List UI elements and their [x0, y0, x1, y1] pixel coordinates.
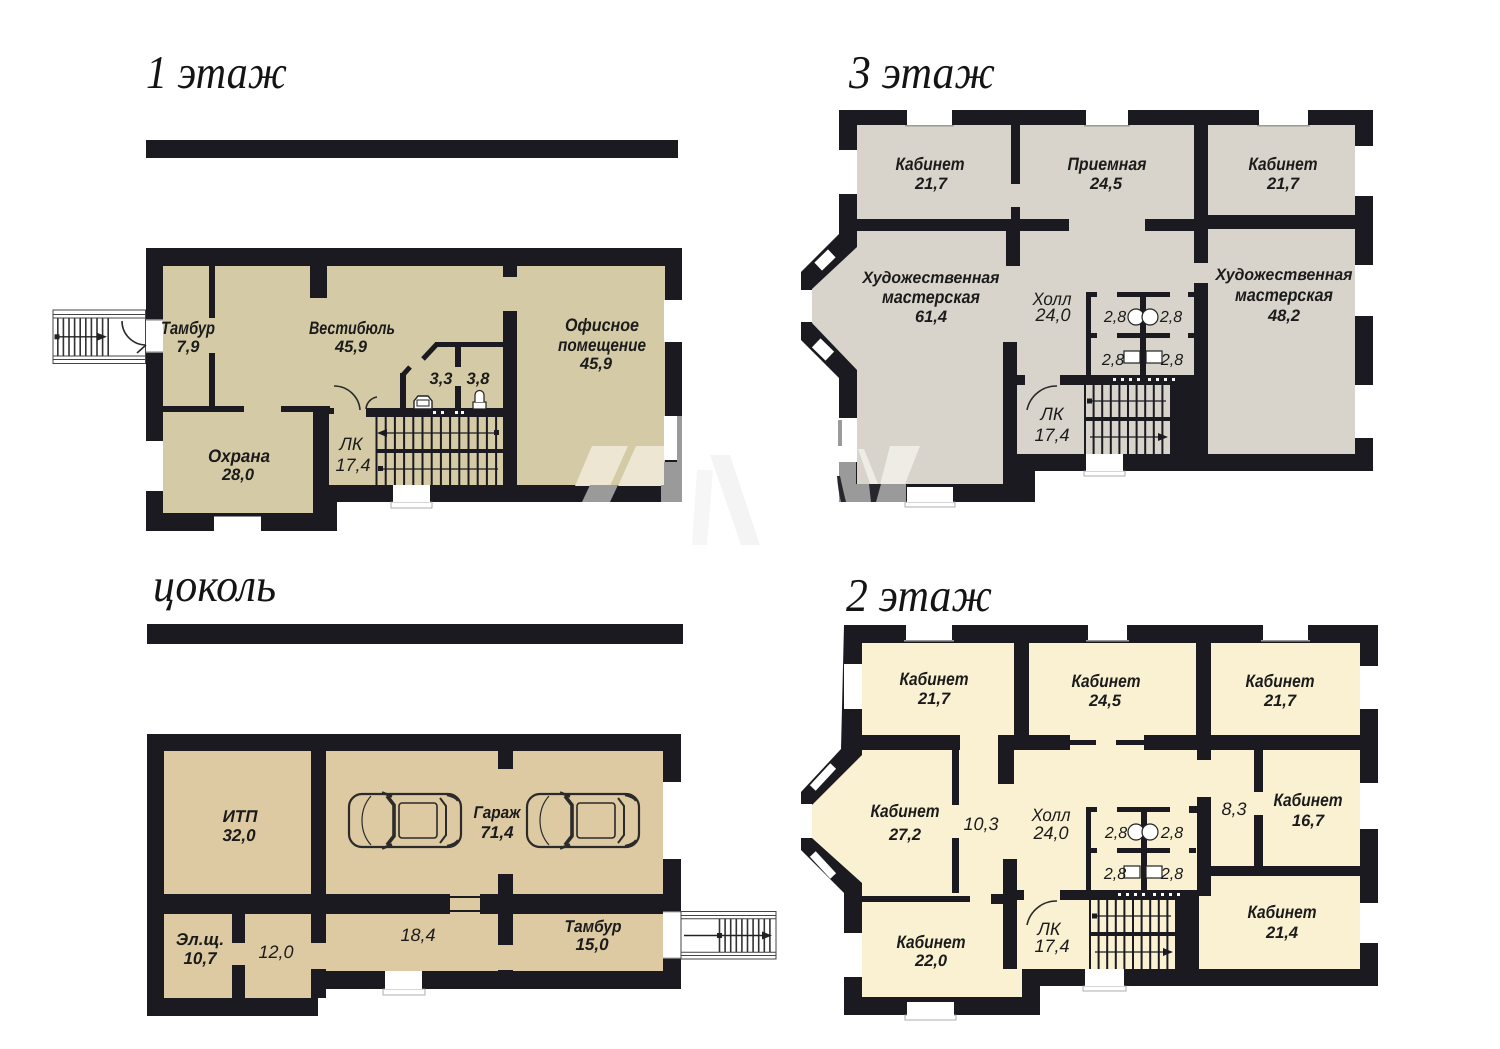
svg-text:2,8: 2,8 — [1160, 825, 1183, 842]
svg-text:24,0: 24,0 — [1032, 823, 1068, 843]
svg-text:Эл.щ.: Эл.щ. — [176, 930, 224, 949]
svg-text:61,4: 61,4 — [915, 308, 947, 326]
svg-text:32,0: 32,0 — [222, 826, 256, 845]
svg-text:2,8: 2,8 — [1104, 825, 1127, 842]
svg-text:Холл: Холл — [1031, 805, 1071, 825]
svg-text:ИТП: ИТП — [223, 807, 259, 826]
svg-text:24,0: 24,0 — [1034, 305, 1070, 325]
svg-text:3,8: 3,8 — [467, 370, 491, 388]
svg-text:2,8: 2,8 — [1103, 309, 1126, 326]
svg-text:Кабинет: Кабинет — [900, 669, 969, 689]
svg-text:Художественная: Художественная — [862, 269, 1000, 287]
svg-text:10,7: 10,7 — [183, 949, 218, 968]
svg-text:Приемная: Приемная — [1068, 154, 1147, 174]
svg-text:Гараж: Гараж — [474, 803, 522, 822]
svg-text:24,5: 24,5 — [1089, 175, 1123, 193]
svg-text:22,0: 22,0 — [914, 952, 948, 970]
svg-text:Кабинет: Кабинет — [897, 932, 966, 952]
svg-text:ЛК: ЛК — [339, 434, 364, 454]
svg-text:ЛК: ЛК — [1040, 404, 1065, 424]
svg-text:45,9: 45,9 — [579, 355, 613, 373]
svg-text:3 этаж: 3 этаж — [848, 47, 995, 99]
svg-text:Тамбур: Тамбур — [161, 318, 215, 338]
svg-text:Кабинет: Кабинет — [1248, 902, 1317, 922]
svg-text:цоколь: цоколь — [153, 560, 276, 612]
svg-text:16,7: 16,7 — [1292, 812, 1325, 830]
svg-text:28,0: 28,0 — [221, 466, 255, 484]
svg-text:21,7: 21,7 — [914, 175, 948, 193]
svg-text:Кабинет: Кабинет — [1246, 671, 1315, 691]
svg-text:Офисное: Офисное — [565, 315, 639, 335]
svg-text:10,3: 10,3 — [963, 814, 998, 834]
svg-text:мастерская: мастерская — [882, 287, 980, 307]
svg-text:18,4: 18,4 — [400, 925, 435, 945]
svg-text:48,2: 48,2 — [1267, 307, 1300, 325]
svg-text:Вестибюль: Вестибюль — [309, 318, 395, 338]
svg-text:7,9: 7,9 — [177, 338, 201, 356]
svg-text:15,0: 15,0 — [575, 935, 609, 954]
svg-text:Кабинет: Кабинет — [1274, 790, 1343, 810]
svg-text:21,7: 21,7 — [1263, 692, 1297, 710]
svg-text:45,9: 45,9 — [334, 338, 368, 356]
svg-text:1 этаж: 1 этаж — [146, 47, 287, 99]
svg-text:Художественная: Художественная — [1215, 266, 1353, 284]
svg-text:Тамбур: Тамбур — [565, 917, 622, 936]
svg-text:8,3: 8,3 — [1221, 799, 1246, 819]
svg-text:2,8: 2,8 — [1101, 352, 1124, 369]
svg-text:Кабинет: Кабинет — [1249, 154, 1318, 174]
svg-text:2,8: 2,8 — [1160, 866, 1183, 883]
svg-text:Кабинет: Кабинет — [1072, 671, 1141, 691]
svg-text:21,7: 21,7 — [917, 690, 951, 708]
svg-text:мастерская: мастерская — [1235, 285, 1333, 305]
svg-text:Кабинет: Кабинет — [896, 154, 965, 174]
svg-text:2,8: 2,8 — [1159, 309, 1182, 326]
svg-text:24,5: 24,5 — [1088, 692, 1122, 710]
svg-text:2,8: 2,8 — [1103, 866, 1126, 883]
svg-text:2,8: 2,8 — [1160, 352, 1183, 369]
svg-text:3,3: 3,3 — [430, 370, 453, 388]
svg-text:21,4: 21,4 — [1265, 924, 1298, 942]
svg-text:21,7: 21,7 — [1266, 175, 1300, 193]
svg-text:17,4: 17,4 — [1034, 936, 1069, 956]
svg-text:17,4: 17,4 — [1034, 425, 1069, 445]
svg-text:помещение: помещение — [558, 335, 646, 355]
svg-text:Охрана: Охрана — [208, 446, 270, 466]
svg-text:12,0: 12,0 — [258, 942, 293, 962]
svg-text:27,2: 27,2 — [888, 826, 921, 844]
svg-text:Кабинет: Кабинет — [871, 801, 940, 821]
svg-text:17,4: 17,4 — [335, 455, 370, 475]
svg-text:71,4: 71,4 — [480, 823, 514, 842]
svg-text:2 этаж: 2 этаж — [846, 570, 992, 622]
